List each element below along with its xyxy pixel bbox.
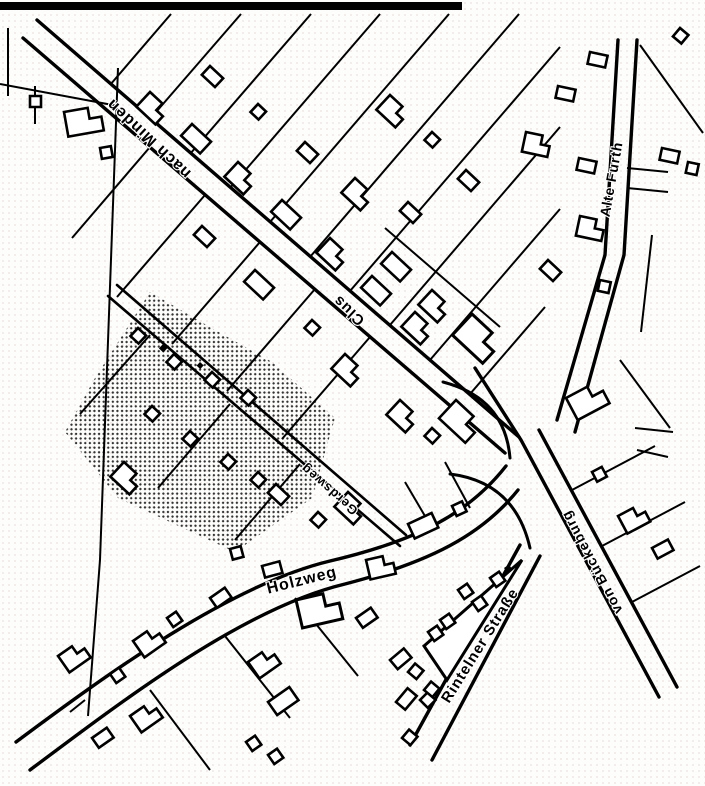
- map-drawing: nach Minden Clus Alte Furth Gerdsweg Hol…: [0, 0, 705, 786]
- street-label-clus: Clus: [330, 292, 368, 329]
- parcel-lines-layer: [0, 14, 703, 770]
- houses-layer: [30, 28, 699, 764]
- street-label-alte-furth: Alte Furth: [597, 140, 626, 218]
- street-label-von-bueckeburg: von Bückeburg: [558, 508, 626, 617]
- map-canvas: nach Minden Clus Alte Furth Gerdsweg Hol…: [0, 0, 705, 786]
- map-frame: [0, 2, 462, 10]
